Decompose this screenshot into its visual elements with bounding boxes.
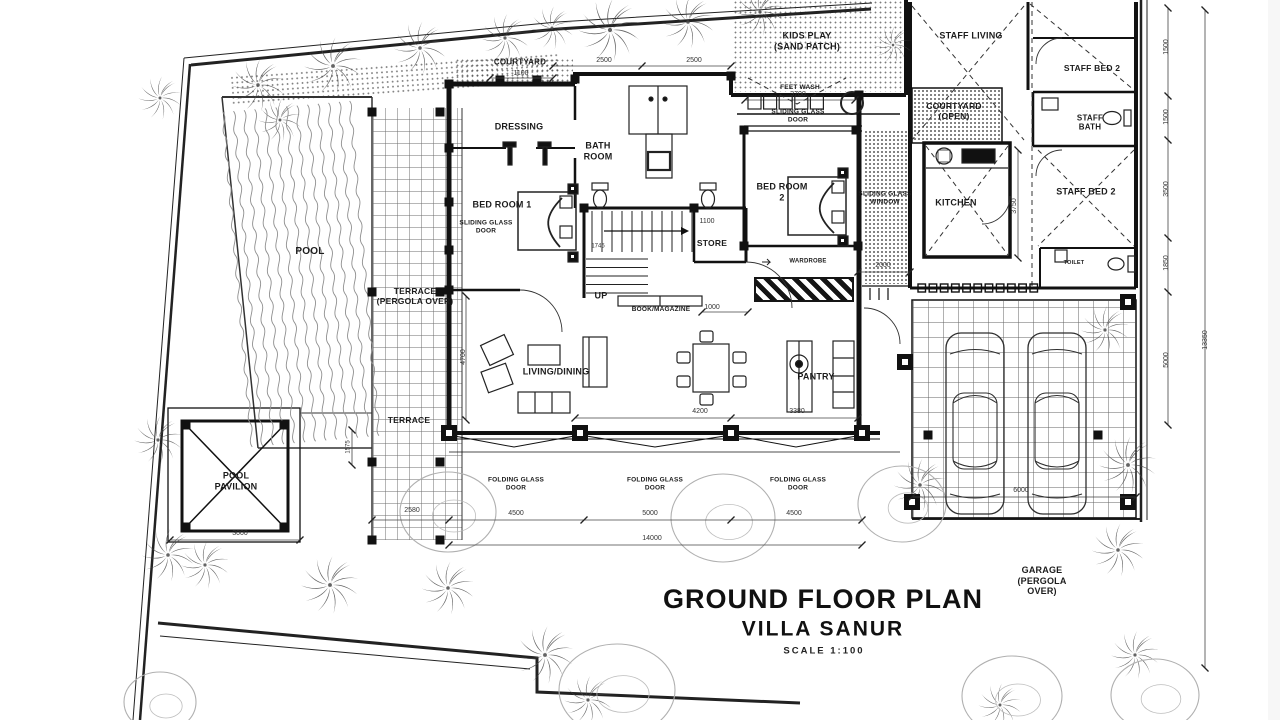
palm-tree-icon	[232, 59, 284, 112]
dim-bed2-door: 3700	[790, 91, 806, 99]
label-store: STORE	[697, 238, 727, 248]
palm-tree-icon	[138, 76, 181, 119]
plan-subtitle: VILLA SANUR	[742, 618, 904, 643]
dim-front-total: 14000	[642, 535, 661, 543]
label-sliding-glass-window: SLIDING GLASS WINDOW	[858, 190, 911, 205]
dim-bay-1: 4500	[508, 510, 524, 518]
dim-living-width: 4200	[692, 408, 708, 416]
dim-right-5: 5000	[1163, 352, 1171, 368]
dim-pantry-width: 3380	[789, 408, 805, 416]
label-folding-glass-door-1: FOLDING GLASS DOOR	[488, 476, 544, 491]
garden-tree-icon	[559, 644, 675, 720]
dim-bay-2: 5000	[642, 510, 658, 518]
dim-right-1: 1500	[1163, 39, 1171, 55]
dim-garage-width: 6000	[1013, 487, 1029, 495]
label-pool-pavilion: POOL PAVILION	[215, 470, 258, 491]
label-courtyard-open: COURTYARD (OPEN)	[926, 101, 981, 121]
furniture-and-fixtures	[481, 86, 1135, 413]
palm-tree-icon	[564, 676, 611, 720]
label-staff-bath: STAFF BATH	[1077, 114, 1103, 133]
label-wardrobe: WARDROBE	[789, 258, 826, 265]
dim-right-4: 1850	[1163, 255, 1171, 271]
label-courtyard-top: COURTYARD	[494, 57, 546, 66]
label-toilet: TOILET	[1064, 260, 1085, 266]
palm-tree-icon	[134, 416, 181, 464]
dim-courtyard-width: 1100	[513, 70, 528, 78]
palm-tree-icon	[1099, 436, 1156, 493]
garden-tree-icon	[1111, 659, 1199, 720]
palm-tree-icon	[579, 0, 641, 61]
label-folding-glass-door-2: FOLDING GLASS DOOR	[627, 476, 683, 491]
garden-tree-icon	[671, 474, 775, 562]
dim-right-2: 1500	[1163, 109, 1171, 125]
palm-tree-icon	[301, 556, 358, 613]
palm-tree-icon	[1081, 306, 1128, 354]
dim-side-offset: 2580	[404, 507, 420, 515]
dim-terrace-step: 1575	[345, 440, 352, 453]
pool-edges	[222, 97, 462, 540]
label-book-magazine: BOOK/MAGAZINE	[632, 306, 691, 314]
dim-wardrobe-width: 2000	[875, 262, 891, 270]
label-sliding-glass-door-bed2: SLIDING GLASS DOOR	[771, 108, 824, 123]
dim-bed1-wall: 1745	[591, 243, 604, 250]
dim-bath-bay-left: 2500	[596, 57, 612, 65]
car-icon	[946, 333, 1004, 514]
label-bed-room-1: BED ROOM 1	[472, 200, 531, 211]
label-dressing: DRESSING	[495, 122, 544, 133]
dim-terrace-height: 4700	[460, 349, 468, 365]
palm-tree-icon	[1111, 631, 1158, 679]
label-garage: GARAGE (PERGOLA OVER)	[1017, 565, 1066, 597]
dim-right-total: 13350	[1202, 330, 1210, 349]
palm-tree-icon	[662, 0, 714, 48]
label-living-dining: LIVING/DINING	[523, 367, 590, 378]
palm-tree-icon	[422, 562, 474, 615]
site-boundary	[133, 0, 1147, 720]
label-stairs-up: UP	[595, 291, 608, 302]
dim-right-3: 3500	[1163, 181, 1171, 197]
pool-water-texture	[222, 101, 381, 447]
car-icon	[1028, 333, 1086, 514]
label-sliding-glass-door-bed1: SLIDING GLASS DOOR	[459, 219, 512, 234]
dim-kitchen-height: 3750	[1011, 198, 1019, 214]
label-pool: POOL	[295, 246, 324, 258]
dim-bath-bay-right: 2500	[686, 57, 702, 65]
plan-title: GROUND FLOOR PLAN	[663, 584, 983, 616]
palm-tree-icon	[516, 626, 573, 683]
label-pantry: PANTRY	[797, 372, 834, 383]
label-staff-living: STAFF LIVING	[939, 31, 1002, 42]
dim-book-shelf: 1000	[704, 304, 720, 312]
palm-tree-icon	[1092, 524, 1144, 577]
plan-linework	[0, 0, 1280, 720]
label-bath-room: BATH ROOM	[584, 140, 613, 161]
palm-tree-icon	[978, 683, 1021, 720]
label-terrace-pergola: TERRACE (PERGOLA OVER)	[377, 286, 454, 306]
dim-bay-3: 4500	[786, 510, 802, 518]
label-bed-room-2: BED ROOM 2	[756, 181, 807, 202]
garden-tree-icon	[858, 466, 946, 542]
palm-tree-icon	[181, 541, 228, 589]
floor-plan-page: COURTYARD 1100 DRESSING BATH ROOM KIDS P…	[0, 0, 1280, 720]
label-kids-play: KIDS PLAY (SAND PATCH)	[774, 30, 840, 51]
label-staff-bed2-lower: STAFF BED 2	[1056, 187, 1116, 198]
dim-store-width: 1100	[699, 218, 714, 226]
label-staff-bed2-upper: STAFF BED 2	[1064, 63, 1120, 73]
label-terrace: TERRACE	[388, 415, 431, 425]
label-folding-glass-door-3: FOLDING GLASS DOOR	[770, 476, 826, 491]
palm-tree-icon	[481, 14, 528, 62]
plan-scale: SCALE 1:100	[783, 645, 864, 656]
label-kitchen: KITCHEN	[935, 198, 976, 209]
dim-pavilion-width: 3000	[232, 530, 248, 538]
palm-tree-icon	[394, 22, 446, 75]
garden-tree-icon	[962, 656, 1062, 720]
